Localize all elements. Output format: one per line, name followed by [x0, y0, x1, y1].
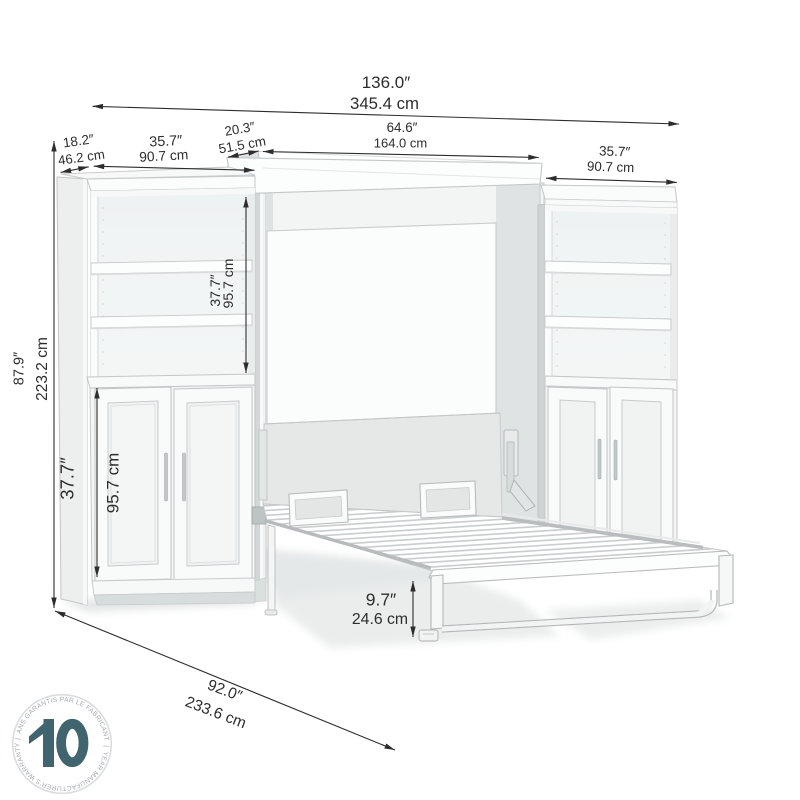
svg-text:37.7″: 37.7″ [57, 457, 78, 500]
svg-text:223.2 cm: 223.2 cm [34, 337, 51, 401]
svg-text:136.0″: 136.0″ [362, 73, 411, 92]
svg-text:90.7 cm: 90.7 cm [587, 158, 635, 175]
svg-text:35.7″: 35.7″ [599, 143, 631, 159]
svg-text:345.4 cm: 345.4 cm [350, 94, 419, 113]
svg-text:9.7″: 9.7″ [366, 589, 397, 609]
svg-text:90.7 cm: 90.7 cm [139, 147, 189, 165]
svg-text:164.0 cm: 164.0 cm [374, 136, 427, 151]
svg-text:24.6 cm: 24.6 cm [352, 611, 408, 628]
svg-text:95.7 cm: 95.7 cm [220, 259, 236, 309]
svg-text:95.7 cm: 95.7 cm [104, 453, 123, 513]
svg-text:64.6″: 64.6″ [387, 120, 418, 135]
svg-text:87.9″: 87.9″ [12, 352, 28, 385]
